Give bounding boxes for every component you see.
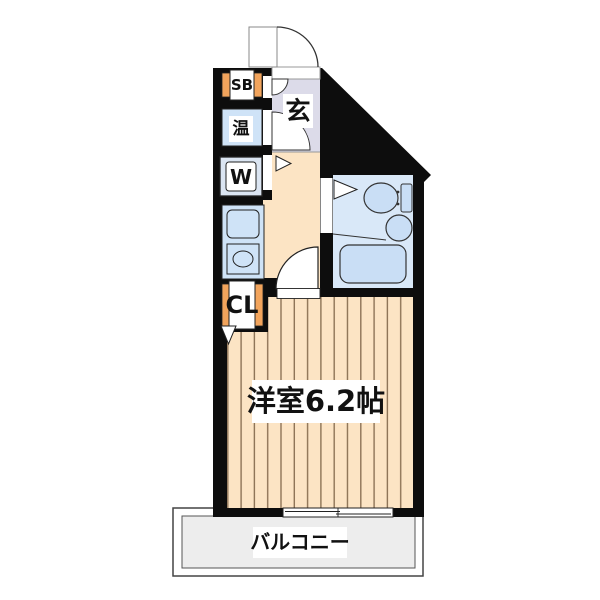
main-room-label: 洋室6.2帖: [247, 384, 385, 418]
toilet-hinge-dot: [397, 203, 400, 206]
balcony-label: バルコニー: [250, 530, 350, 554]
closet-label: CL: [226, 291, 259, 319]
entrance-door-arc: [277, 27, 318, 67]
toilet: [364, 183, 398, 213]
kitchen-stove: [227, 210, 259, 238]
toilet-hinge-dot: [397, 191, 400, 194]
floorplan-drawing: SB 温 W CL 玄 洋室6.2帖 バルコニー: [0, 0, 600, 600]
shoe-box-label: SB: [231, 76, 253, 94]
bathtub: [340, 245, 406, 283]
room-door-sill: [277, 289, 320, 299]
window: [283, 508, 393, 517]
genkan-label: 玄: [285, 97, 310, 126]
water-heater-label: 温: [233, 119, 250, 139]
water-heater: 温: [222, 109, 262, 146]
washer-space: W: [220, 157, 262, 196]
entrance-door-leaf: [249, 27, 277, 67]
washer-label: W: [230, 165, 252, 189]
entrance-door-sill: [272, 67, 320, 79]
balcony-label-group: バルコニー: [250, 527, 350, 558]
water-heater-opening: [263, 110, 272, 145]
shoe-box: SB: [222, 70, 262, 100]
washer-opening: [263, 155, 272, 190]
kitchen-unit: [222, 205, 264, 279]
toilet-tank: [401, 184, 412, 212]
floorplan-canvas: SB 温 W CL 玄 洋室6.2帖 バルコニー: [0, 0, 600, 600]
bathroom-door-opening: [321, 178, 333, 233]
genkan-label-group: 玄: [283, 94, 313, 128]
kitchen-sink: [227, 244, 259, 274]
shoe-box-opening: [263, 76, 272, 98]
main-room-label-group: 洋室6.2帖: [247, 380, 385, 423]
wash-basin: [386, 215, 412, 241]
